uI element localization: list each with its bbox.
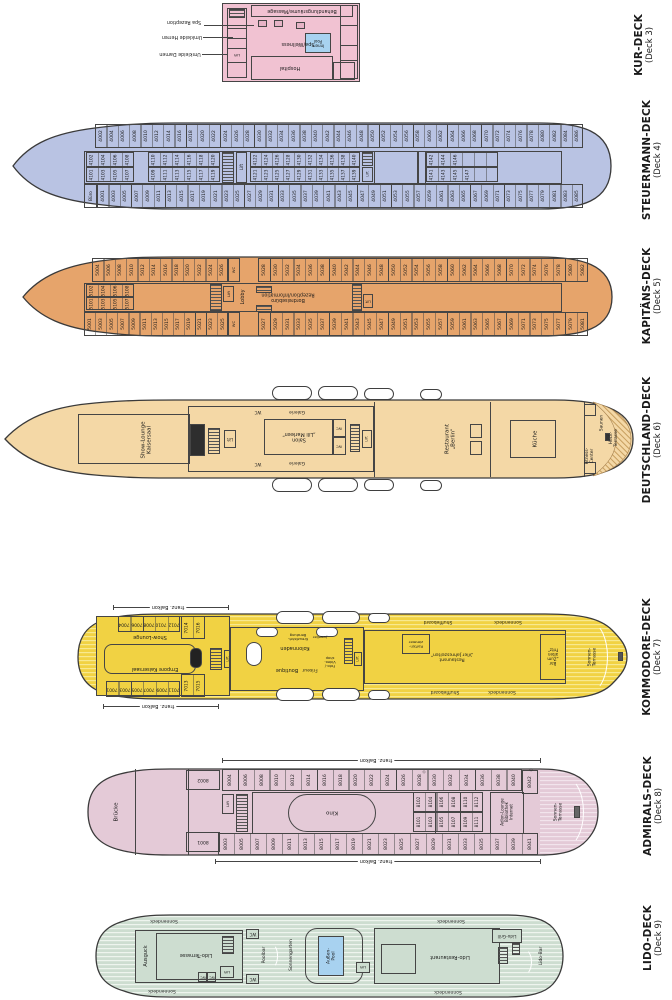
cabin-4066: 4066 <box>461 130 466 142</box>
cabin-8035: 8035 <box>479 838 484 850</box>
cabin-4129: 4129 <box>297 169 302 180</box>
cabin-8020: 8020 <box>354 774 359 786</box>
cabin-5005: 5005 <box>109 318 114 330</box>
cabin-4124: 4124 <box>264 154 269 165</box>
cabin-4054: 4054 <box>393 130 398 142</box>
cabin-4037: 4037 <box>303 190 308 202</box>
cabin-8107: 8107 <box>452 817 457 828</box>
lift-label: Lift <box>234 53 240 57</box>
cabin-7006: 7006 <box>131 622 142 627</box>
cabin-5019: 5019 <box>187 318 192 330</box>
cabin-8110: 8110 <box>463 797 468 808</box>
cabin-5036: 5036 <box>309 264 314 276</box>
behandlungsräume-massage-label: Behandlungsräume/Massage <box>267 8 336 13</box>
empore-kaisersaal-label: Empore Kaisersaal <box>132 666 178 672</box>
cabin-5106: 5106 <box>114 285 119 296</box>
cabin-5077: 5077 <box>556 318 561 330</box>
cabin-7008: 7008 <box>143 622 154 627</box>
cabin-4053: 4053 <box>394 190 399 202</box>
lido-terrasse-label: Lido-Terrasse <box>180 952 213 958</box>
sonnendeck-label: Sonnendeck <box>488 689 516 694</box>
cabin-7013: 7013 <box>185 680 190 691</box>
admirals-deck-cabin-pair-bottom <box>413 812 483 832</box>
deutschland-deck-wall-line <box>490 402 491 477</box>
cabin-7007: 7007 <box>144 687 155 692</box>
aussen-pool-label: Außen- Pool <box>326 948 336 964</box>
cabin-4134: 4134 <box>319 154 324 165</box>
cabin-5008: 5008 <box>118 264 123 276</box>
deutschland-deck-name-label: DEUTSCHLAND-DECK <box>641 377 653 504</box>
cabin-4142: 4142 <box>430 154 435 165</box>
cabin-4144: 4144 <box>442 154 447 165</box>
cabin-8024: 8024 <box>385 774 390 786</box>
deutschland-deck-lifeboat <box>364 479 394 491</box>
cabin-5015: 5015 <box>165 318 170 330</box>
cabin-5054: 5054 <box>415 264 420 276</box>
steuermann-deck-name-label: STEUERMANN-DECK <box>641 100 653 220</box>
cabin-4122: 4122 <box>253 154 258 165</box>
kommodore-deck-lifeboat <box>322 611 360 624</box>
cabin-8005: 8005 <box>239 838 244 850</box>
cabin-5030: 5030 <box>273 264 278 276</box>
cabin-4026: 4026 <box>234 130 239 142</box>
shuffleboard-label: Shuffleboard <box>431 689 460 694</box>
cabin-5075: 5075 <box>545 318 550 330</box>
cabin-4042: 4042 <box>325 130 330 142</box>
boutique-label: Boutique <box>276 667 298 673</box>
cabin-4027: 4027 <box>247 190 252 202</box>
cabin-5066: 5066 <box>486 264 491 276</box>
cabin-5028: 5028 <box>261 264 266 276</box>
foto-video-shop-label: Foto-/ Video- shop <box>324 656 335 668</box>
deutschland-deck-service-station <box>470 424 482 438</box>
deutschland-deck-lifeboat <box>420 389 442 400</box>
cabin-4112: 4112 <box>164 154 169 165</box>
deutschland-deck-lifeboat <box>272 478 312 492</box>
lido-deck-number-label: (Deck 9) <box>654 920 664 956</box>
cabin-4123: 4123 <box>264 169 269 180</box>
cabin-8007: 8007 <box>255 838 260 850</box>
cabin-4147: 4147 <box>466 169 471 180</box>
lift-label: Lift <box>356 656 360 661</box>
kur-deck-wall-line <box>227 38 247 39</box>
cabin-5010: 5010 <box>129 264 134 276</box>
cabin-5082: 5082 <box>580 264 585 276</box>
cabin-7015: 7015 <box>197 680 202 691</box>
cabin-8013: 8013 <box>303 838 308 850</box>
kommodore-deck-stairs <box>344 638 353 664</box>
deck-plan-canvas: Behandlungsräume/MassageSpa RezeptionUmk… <box>0 0 672 1000</box>
cabin-4052: 4052 <box>382 130 387 142</box>
kolonnaden-label: Kolonnaden <box>280 645 309 651</box>
kommodore-deck-balkon-tick <box>113 605 114 610</box>
cabin-4028: 4028 <box>246 130 251 142</box>
deutschland-deck-kaisersaal-room <box>78 414 190 464</box>
wc-label: WC <box>200 975 205 979</box>
lido-restaurant-label: Lido-Restaurant <box>430 954 470 960</box>
cabin-8004: 8004 <box>227 774 232 786</box>
cabin-8015: 8015 <box>319 838 324 850</box>
kapitaens-deck-stairs <box>352 284 362 311</box>
kommodore-deck-name-label: KOMMODORE-DECK <box>641 598 653 716</box>
cabin-8041: 8041 <box>527 838 532 850</box>
cabin-8103: 8103 <box>428 817 433 828</box>
kommodore-deck-balkon-tick <box>103 704 104 709</box>
cabin-5058: 5058 <box>438 264 443 276</box>
kommodore-deck-stern-mark <box>618 652 623 661</box>
cabin-7009: 7009 <box>156 687 167 692</box>
cabin-4113: 4113 <box>176 169 181 180</box>
cabin-4073: 4073 <box>507 190 512 202</box>
cabin-8019: 8019 <box>351 838 356 850</box>
cabin-4010: 4010 <box>143 130 148 142</box>
cabin-8104: 8104 <box>428 797 433 808</box>
kommodore-deck-balkon-tick <box>218 704 219 709</box>
lido-deck-stairs <box>222 936 234 954</box>
cabin-4036: 4036 <box>291 130 296 142</box>
cabin-4019: 4019 <box>202 190 207 202</box>
admirals-deck-cabin-pair-top <box>413 792 483 812</box>
cabin-5050: 5050 <box>391 264 396 276</box>
cabin-5039: 5039 <box>332 318 337 330</box>
cabin-5026: 5026 <box>220 264 225 276</box>
admirals-deck-number-label: (Deck 8) <box>654 788 664 824</box>
cabin-4033: 4033 <box>281 190 286 202</box>
steuermann-deck-cabin-pair-bottom <box>426 167 498 182</box>
kreuzfahrt-beratung-label: Kreuzfahrt- Beratung <box>288 633 308 641</box>
cabin-5041: 5041 <box>344 318 349 330</box>
sonnendeck-label: Sonnendeck <box>437 918 465 923</box>
cabin-4120: 4120 <box>212 154 217 165</box>
cabin-4138: 4138 <box>341 154 346 165</box>
cabin-4059: 4059 <box>428 190 433 202</box>
cabin-4048: 4048 <box>359 130 364 142</box>
cabin-8029: 8029 <box>431 838 436 850</box>
cabin-5040: 5040 <box>332 264 337 276</box>
cabin-8105: 8105 <box>440 817 445 828</box>
kur-deck-corner-room <box>333 62 355 80</box>
admirals-deck-wall-line <box>188 769 189 855</box>
heck-terrasse-label: Heck- Terrasse <box>609 429 619 447</box>
cabin-4051: 4051 <box>383 190 388 202</box>
cabin-8040: 8040 <box>512 774 517 786</box>
lift-label: Lift <box>226 656 230 661</box>
poolbar-label: Poolbar <box>261 947 266 964</box>
cabin-4083: 4083 <box>563 190 568 202</box>
cabin-5051: 5051 <box>403 318 408 330</box>
cabin-5001: 5001 <box>87 318 92 330</box>
cabin-5024: 5024 <box>208 264 213 276</box>
cabin-4047: 4047 <box>360 190 365 202</box>
cabin-5057: 5057 <box>438 318 443 330</box>
lido-deck-stairs <box>498 947 508 964</box>
cabin-5012: 5012 <box>140 264 145 276</box>
cabin-5072: 5072 <box>521 264 526 276</box>
steuermann-deck-number-label: (Deck 4) <box>653 142 663 178</box>
cabin-4017: 4017 <box>190 190 195 202</box>
cabin-5044: 5044 <box>356 264 361 276</box>
cabin-4146: 4146 <box>454 154 459 165</box>
cabin-5067: 5067 <box>497 318 502 330</box>
cabin-4045: 4045 <box>349 190 354 202</box>
cabin-4008: 4008 <box>132 130 137 142</box>
karten-zimmer-label: Karten- zimmer <box>409 640 423 649</box>
cabin-4022: 4022 <box>212 130 217 142</box>
kommodore-deck-lifeboat <box>276 611 314 624</box>
kommodore-deck-stairs <box>210 648 222 670</box>
sonnen-terrasse-label: Sonnen- Terrasse <box>587 648 597 667</box>
cabin-4035: 4035 <box>292 190 297 202</box>
lobby-label: Lobby <box>240 289 246 304</box>
cabin-4001: 4001 <box>100 190 105 202</box>
cabin-7004: 7004 <box>119 622 130 627</box>
cabin-5060: 5060 <box>450 264 455 276</box>
cabin-4004: 4004 <box>109 130 114 142</box>
cabin-5007: 5007 <box>120 318 125 330</box>
kur-deck-wall-line <box>340 25 358 26</box>
sonnen-terrasse-label: Sonnen- Terrasse <box>553 803 563 822</box>
deutschland-deck-stern-stairs <box>584 404 596 416</box>
wc-label: WC <box>336 426 342 430</box>
cabin-5037: 5037 <box>320 318 325 330</box>
kur-deck-wall-line <box>202 54 228 55</box>
lift-label: Lift <box>366 171 370 176</box>
cabin-4079: 4079 <box>541 190 546 202</box>
cabin-5004: 5004 <box>95 264 100 276</box>
cabin-4117: 4117 <box>200 169 205 180</box>
spa-rezeption-label: Spa Rezeption <box>167 19 201 24</box>
cabin-5048: 5048 <box>379 264 384 276</box>
cabin-wc: WC <box>232 267 236 273</box>
kur-deck-wall-line <box>204 25 254 26</box>
admirals-deck-franz-balkon-label: franz. Balkon <box>358 858 395 864</box>
cabin-5076: 5076 <box>545 264 550 276</box>
cabin-4127: 4127 <box>286 169 291 180</box>
deutschland-deck-lifeboat <box>420 480 442 491</box>
cabin-4062: 4062 <box>439 130 444 142</box>
deutschland-deck-wall-line <box>374 402 375 477</box>
cabin-5059: 5059 <box>450 318 455 330</box>
cabin-8012: 8012 <box>291 774 296 786</box>
cabin-4030: 4030 <box>257 130 262 142</box>
cabin-4013: 4013 <box>168 190 173 202</box>
cabin-4136: 4136 <box>330 154 335 165</box>
cabin-4075: 4075 <box>518 190 523 202</box>
kapitaens-deck-number-label: (Deck 5) <box>653 278 663 314</box>
cabin-4067: 4067 <box>473 190 478 202</box>
lift-label: Lift <box>224 970 230 974</box>
cabin-4055: 4055 <box>405 190 410 202</box>
cabin-5053: 5053 <box>415 318 420 330</box>
cabin-8027: 8027 <box>415 838 420 850</box>
cabin-4057: 4057 <box>416 190 421 202</box>
cabin-4106: 4106 <box>114 154 119 165</box>
innen-pool-label: Innen- Pool <box>312 39 325 48</box>
wc-label: WC <box>209 975 214 979</box>
cabin-5062: 5062 <box>462 264 467 276</box>
cabin-4016: 4016 <box>178 130 183 142</box>
steuermann-deck-cabin-pair-top <box>148 152 220 167</box>
cabin-8011: 8011 <box>287 838 292 850</box>
bordreisebüro-rezeption-information-label: Bordreisebüro Rezeption/Information <box>261 292 314 303</box>
cabin-4018: 4018 <box>189 130 194 142</box>
cabin-4115: 4115 <box>188 169 193 180</box>
cabin-4116: 4116 <box>188 154 193 165</box>
kommodore-deck-lifeboat <box>368 613 390 623</box>
cabin-4133: 4133 <box>319 169 324 180</box>
cabin-5061: 5061 <box>462 318 467 330</box>
cabin-8026: 8026 <box>401 774 406 786</box>
cabin-5056: 5056 <box>427 264 432 276</box>
kur-deck-number-label: (Deck 3) <box>645 27 655 63</box>
cabin-4145: 4145 <box>454 169 459 180</box>
cabin-4065: 4065 <box>462 190 467 202</box>
lido-deck-dance-floor <box>381 944 416 974</box>
cabin-8028: 8028 <box>417 774 422 786</box>
cabin-5017: 5017 <box>176 318 181 330</box>
cabin-8032: 8032 <box>449 774 454 786</box>
kur-deck-massage-bed <box>296 22 305 29</box>
cabin-4105: 4105 <box>114 169 119 180</box>
cabin-5038: 5038 <box>320 264 325 276</box>
cabin-8022: 8022 <box>370 774 375 786</box>
lido-bar-label: Lido-Bar <box>538 947 543 966</box>
cabin-4140: 4140 <box>352 154 357 165</box>
cabin-8002-label: 8002 <box>197 777 208 782</box>
steuermann-deck-open-room <box>374 151 418 184</box>
kur-deck-stair-block <box>227 8 247 78</box>
cabin-5009: 5009 <box>131 318 136 330</box>
cabin-4131: 4131 <box>308 169 313 180</box>
cabin-5069: 5069 <box>509 318 514 330</box>
steuermann-deck-service-cell <box>418 151 426 184</box>
cabin-4039: 4039 <box>315 190 320 202</box>
lift-label: Lift <box>226 291 230 297</box>
cabin-4031: 4031 <box>270 190 275 202</box>
cabin-5102: 5102 <box>90 285 95 296</box>
cabin-8016: 8016 <box>322 774 327 786</box>
cabin-8030: 8030 <box>433 774 438 786</box>
cabin-4034: 4034 <box>280 130 285 142</box>
cabin-8036: 8036 <box>480 774 485 786</box>
cabin-8108: 8108 <box>452 797 457 808</box>
wc-label: WC <box>336 444 342 448</box>
cabin-8009: 8009 <box>271 838 276 850</box>
cabin-4056: 4056 <box>405 130 410 142</box>
cabin-8106: 8106 <box>440 797 445 808</box>
wc-label: WC <box>249 932 256 936</box>
friseur-label: Friseur <box>302 667 317 672</box>
cabin-8018: 8018 <box>338 774 343 786</box>
umkleide-damen-label: Umkleide Damen <box>159 51 200 56</box>
sonnendeck-label: Sonnendeck <box>150 918 178 923</box>
cabin-4121: 4121 <box>253 169 258 180</box>
cabin-8112: 8112 <box>475 797 480 808</box>
cabin-8033: 8033 <box>463 838 468 850</box>
shuffleboard-label: Shuffleboard <box>424 619 453 624</box>
cabin-4044: 4044 <box>336 130 341 142</box>
kommodore-deck-lifeboat <box>276 688 314 701</box>
kur-deck-wall-line <box>227 62 247 63</box>
admirals-deck-balkon-tick <box>222 758 223 763</box>
deutschland-deck-stairs <box>350 424 360 452</box>
cabin-5047: 5047 <box>379 318 384 330</box>
cabin-5020: 5020 <box>186 264 191 276</box>
cabin-4109: 4109 <box>152 169 157 180</box>
cabin-8006: 8006 <box>243 774 248 786</box>
cabin-8003: 8003 <box>223 838 228 850</box>
sonnendeck-label: Sonnendeck <box>148 988 176 993</box>
cabin-4041: 4041 <box>326 190 331 202</box>
cabin-4038: 4038 <box>302 130 307 142</box>
cabin-4111: 4111 <box>164 169 169 180</box>
küche-label: Küche <box>532 431 538 448</box>
cabin-4080: 4080 <box>541 130 546 142</box>
deutschland-deck-lifeboat <box>364 388 394 400</box>
cabin-4021: 4021 <box>213 190 218 202</box>
kur-deck-wall-line <box>227 48 247 49</box>
cabin-8039: 8039 <box>511 838 516 850</box>
cabin-4077: 4077 <box>529 190 534 202</box>
cabin-7014: 7014 <box>185 622 190 633</box>
cabin-4070: 4070 <box>484 130 489 142</box>
cabin-4025: 4025 <box>236 190 241 202</box>
cabin-4132: 4132 <box>308 154 313 165</box>
cabin-4082: 4082 <box>552 130 557 142</box>
cabin-4011: 4011 <box>157 190 162 202</box>
cabin-4110: 4110 <box>152 154 157 165</box>
deutschland-deck-lifeboat <box>318 386 358 400</box>
cabin-4101: 4101 <box>90 169 95 180</box>
cabin-4009: 4009 <box>145 190 150 202</box>
kur-deck-wall-line <box>340 60 358 61</box>
cabin-4043: 4043 <box>337 190 342 202</box>
admirals-deck-stairs <box>236 794 248 832</box>
cabin-4126: 4126 <box>275 154 280 165</box>
sonnendeck-label: Sonnendeck <box>434 989 462 994</box>
cabin-8038: 8038 <box>496 774 501 786</box>
cabin-5068: 5068 <box>497 264 502 276</box>
connecting-door-mark: ◇ <box>422 770 425 774</box>
cabin-4108: 4108 <box>126 154 131 165</box>
sonnendeck-label: Sonnendeck <box>494 619 522 624</box>
lido-deck-deck-arc <box>266 944 278 968</box>
saunen-label: Saunen <box>600 415 605 431</box>
cabin-4050: 4050 <box>370 130 375 142</box>
cabin-8102: 8102 <box>416 797 421 808</box>
cabin-4074: 4074 <box>507 130 512 142</box>
cabin-5107: 5107 <box>126 298 131 309</box>
cabin-5070: 5070 <box>509 264 514 276</box>
kino-label: Kino <box>326 810 338 816</box>
admirals-deck-balkon-tick <box>540 859 541 864</box>
cabin-5071: 5071 <box>521 318 526 330</box>
kur-deck-wall-line <box>227 28 247 29</box>
cabin-4137: 4137 <box>341 169 346 180</box>
cabin-8017: 8017 <box>335 838 340 850</box>
galerie-label: Galerie <box>289 460 305 465</box>
cabin-5035: 5035 <box>309 318 314 330</box>
cabin-4049: 4049 <box>371 190 376 202</box>
ausguck-label: Ausguck <box>143 945 149 966</box>
deutschland-deck-wall-line <box>584 402 585 477</box>
cabin-5003: 5003 <box>98 318 103 330</box>
deutschland-deck-number-label: (Deck 6) <box>653 422 663 458</box>
cabin-5006: 5006 <box>106 264 111 276</box>
steuermann-deck-cabin-pair-bottom <box>148 167 220 182</box>
umkleide-herren-label: Umkleide Herren <box>162 34 202 39</box>
lift-label: Lift <box>227 437 233 441</box>
